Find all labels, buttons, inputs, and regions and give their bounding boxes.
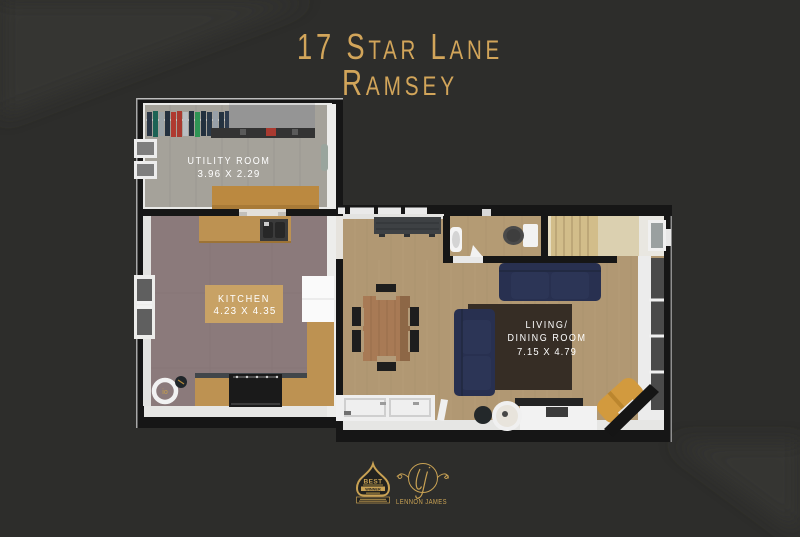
svg-text:WINNER: WINNER: [365, 487, 381, 491]
svg-text:UTILITY ROOM: UTILITY ROOM: [188, 156, 271, 167]
svg-text:KITCHEN: KITCHEN: [218, 294, 270, 305]
svg-text:DINING ROOM: DINING ROOM: [508, 332, 587, 344]
svg-text:BEST: BEST: [364, 479, 383, 486]
svg-text:LENNON JAMES: LENNON JAMES: [396, 499, 447, 506]
svg-text:3.96 X 2.29: 3.96 X 2.29: [198, 169, 261, 180]
svg-text:LIVING/: LIVING/: [526, 319, 569, 331]
svg-text:io: io: [162, 389, 168, 396]
svg-text:4.23 X 4.35: 4.23 X 4.35: [214, 306, 277, 317]
svg-text:7.15 X 4.79: 7.15 X 4.79: [517, 346, 577, 358]
